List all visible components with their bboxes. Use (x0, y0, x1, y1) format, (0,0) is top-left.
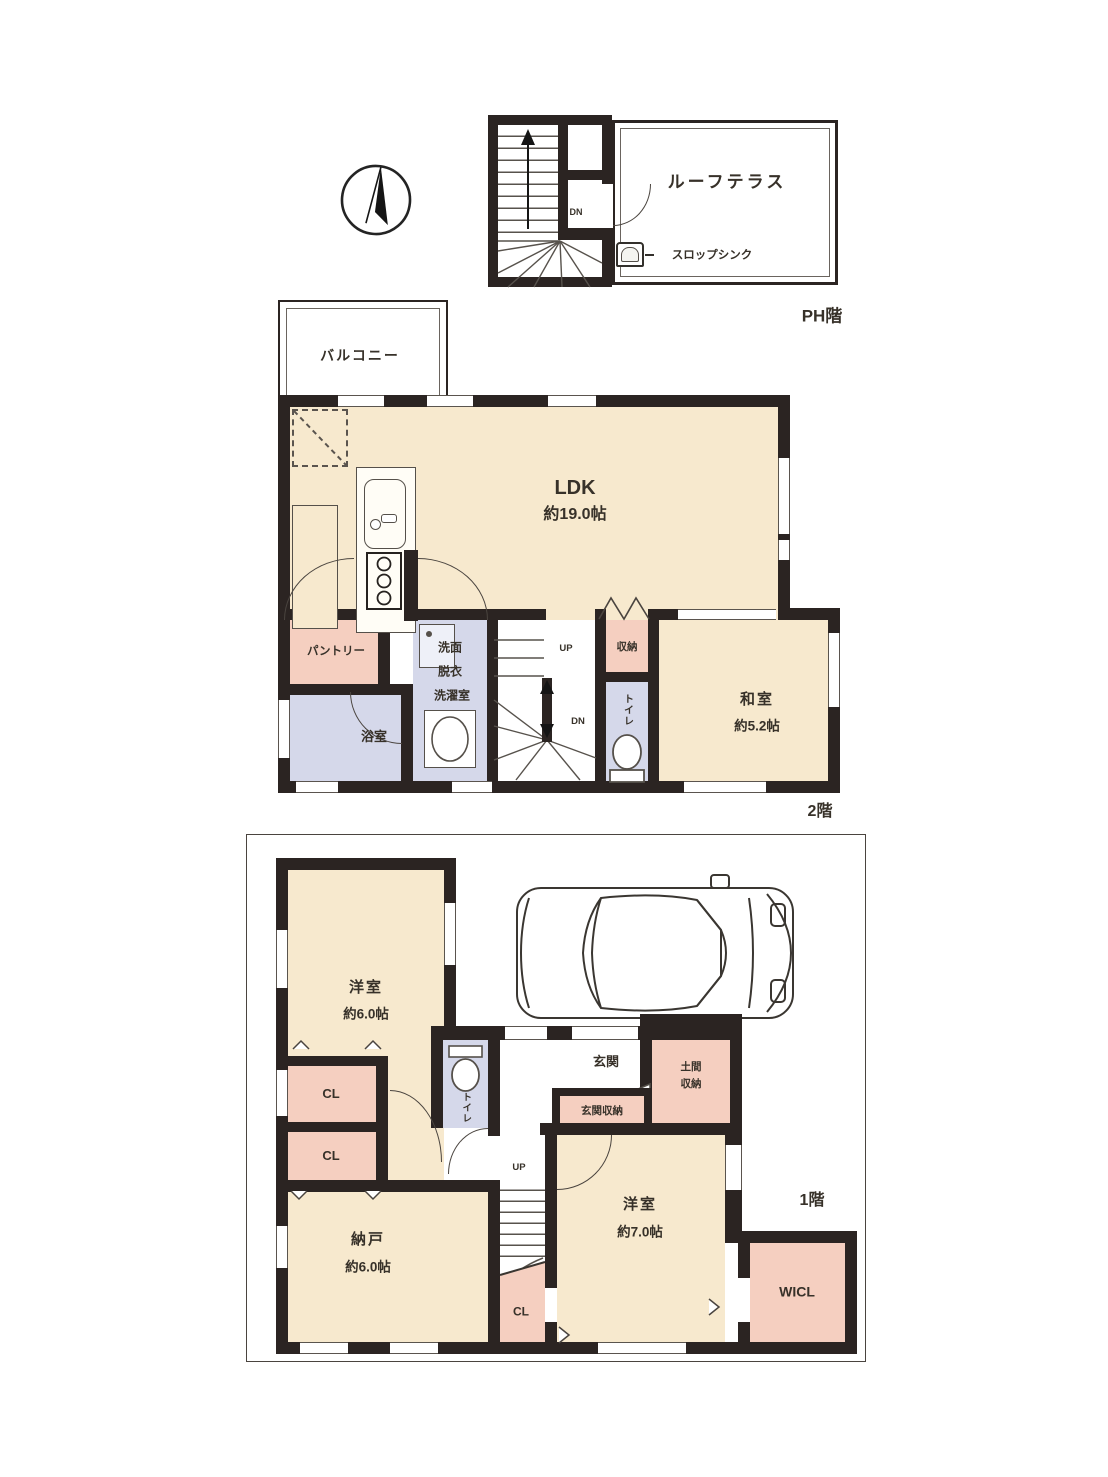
wall-segment (730, 1014, 742, 1135)
nando-size-label: 約6.0帖 (345, 1261, 391, 1276)
sliding-door-opening (678, 609, 776, 620)
window-opening (505, 1026, 547, 1040)
closet2-label: CL (322, 1149, 339, 1163)
refrigerator-diagonal (292, 409, 348, 467)
f2-floor-label: 2階 (808, 803, 833, 821)
western7-size-label: 約7.0帖 (617, 1226, 663, 1241)
door-chevron (558, 1326, 570, 1344)
wall-segment (276, 1056, 388, 1066)
window-opening (278, 700, 290, 758)
window-opening (427, 395, 473, 407)
sliding-door-chevron (364, 1040, 382, 1050)
ldk-size-label: 約19.0帖 (543, 506, 606, 524)
faucet-icon (370, 519, 381, 530)
bathroom-label: 浴室 (361, 730, 387, 744)
balcony-label: バルコニー (320, 348, 400, 363)
closet-under-stairs-label: CL (513, 1305, 529, 1318)
western6-label: 洋室 (349, 980, 383, 997)
western7-label: 洋室 (623, 1197, 657, 1214)
western6-room (288, 870, 444, 1056)
stairs-down-label: DN (570, 208, 583, 218)
window-opening (296, 781, 338, 793)
stairs-up-label-1f: UP (512, 1163, 525, 1173)
toilet-icon (608, 734, 648, 784)
pantry-label: パントリー (307, 646, 365, 659)
doma-storage-label-1: 土間 (681, 1062, 702, 1074)
winder-stairs-lines (498, 235, 602, 287)
slop-sink-inner (621, 247, 639, 262)
wall-segment (276, 1180, 500, 1192)
door-opening (738, 1278, 750, 1322)
window-opening (778, 458, 790, 534)
wall-segment (595, 609, 606, 781)
wall-segment (648, 609, 659, 781)
stairs-up-label: UP (559, 644, 572, 654)
toilet-icon (446, 1044, 486, 1096)
f1-floor-label: 1階 (800, 1192, 825, 1210)
wall-segment (540, 1123, 742, 1135)
faucet-handle (381, 514, 397, 523)
floor-plan-canvas: DN ルーフテラス スロップシンク PH階 バルコニー (0, 0, 1108, 1477)
wall-segment (404, 550, 418, 621)
window-opening (276, 1226, 288, 1268)
washroom-label-1: 洗面 (438, 641, 462, 654)
western6-size-label: 約6.0帖 (343, 1008, 389, 1023)
stove-burners (366, 552, 402, 610)
sliding-door-chevron (290, 1190, 308, 1200)
door-opening (545, 1288, 557, 1322)
wall-segment (640, 1014, 742, 1026)
window-opening (452, 781, 492, 793)
washroom-label-2: 脱衣 (438, 665, 462, 678)
window-opening (300, 1342, 348, 1354)
stair-treads (500, 1180, 545, 1260)
nando-label: 納戸 (351, 1232, 385, 1249)
leader-line (645, 254, 654, 256)
window-opening (684, 781, 766, 793)
doma-storage-room (652, 1026, 730, 1123)
washitsu-label: 和室 (740, 692, 774, 709)
wall-segment (431, 1026, 443, 1128)
roof-terrace-label: ルーフテラス (668, 174, 787, 193)
wall-segment (494, 609, 546, 620)
wall-segment (276, 1122, 388, 1132)
washing-machine-tub (424, 710, 476, 768)
wall-segment (401, 684, 413, 781)
north-arrow-icon (335, 158, 417, 242)
wicl-label: WICL (779, 1284, 815, 1299)
wall-segment (488, 1026, 500, 1136)
storage-label: 収納 (617, 642, 638, 654)
washbasin-drain (426, 631, 432, 637)
wall-segment (488, 1180, 500, 1354)
door-chevron (708, 1298, 720, 1316)
slop-sink-label: スロップシンク (672, 250, 753, 263)
window-opening (276, 1070, 288, 1116)
wall-segment (845, 1231, 857, 1354)
wall-segment (276, 858, 456, 870)
wall-segment (545, 1342, 857, 1354)
entrance-storage-label: 玄関収納 (581, 1106, 623, 1118)
ph-floor-label: PH階 (802, 308, 843, 327)
sliding-door-chevron (292, 1040, 310, 1050)
window-opening (444, 903, 456, 965)
window-opening (725, 1145, 742, 1190)
washroom-label-3: 洗濯室 (434, 689, 470, 702)
ldk-label: LDK (554, 477, 595, 499)
entrance-label: 玄関 (593, 1055, 619, 1069)
window-opening (390, 1342, 438, 1354)
window-opening (338, 395, 384, 407)
wall-segment (568, 170, 602, 180)
toilet-label-2f: トイレ (622, 694, 633, 727)
window-opening (548, 395, 596, 407)
window-opening (276, 930, 288, 988)
entrance-door-opening (572, 1026, 638, 1040)
window-opening (828, 633, 840, 707)
closet1-label: CL (322, 1087, 339, 1101)
wall-segment (738, 1231, 857, 1243)
stairs-down-label: DN (571, 717, 585, 727)
sliding-door-chevron (364, 1190, 382, 1200)
closet-slant-line (500, 1262, 545, 1276)
doma-storage-label-2: 収納 (681, 1079, 702, 1091)
toilet-label-1f: トイレ (460, 1092, 470, 1124)
folding-door-icon (598, 594, 650, 621)
door-opening (600, 184, 613, 228)
washitsu-size-label: 約5.2帖 (734, 720, 780, 735)
stair-up-arrow-icon (498, 125, 560, 237)
stairs-2f-lines (494, 620, 596, 781)
window-opening (778, 540, 790, 560)
window-opening (598, 1342, 686, 1354)
wall-segment (376, 1056, 388, 1192)
